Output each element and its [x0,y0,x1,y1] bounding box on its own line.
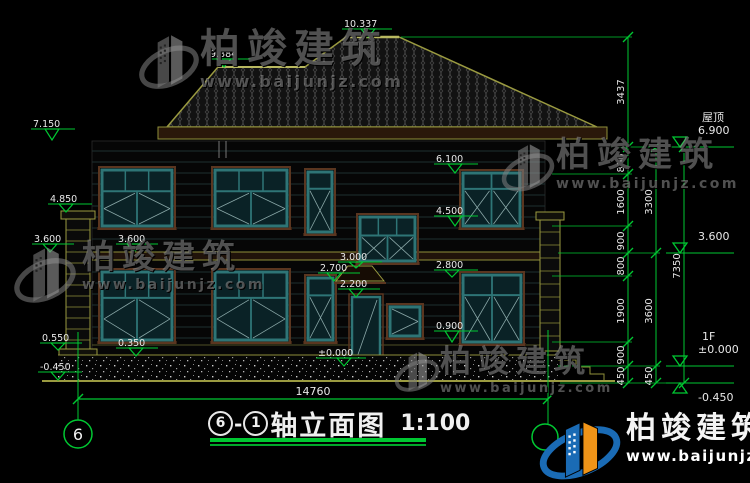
title-underline-thick [210,438,426,442]
chain-dim-value: 900 [616,345,627,364]
elevation-value: 10.337 [344,19,377,30]
window-double [210,167,292,230]
dim-chain: 343780016009008001900900450 [616,32,633,388]
title-underline-thin [210,444,426,446]
corner-pier [536,212,564,351]
overall-dim-value: 14760 [296,385,331,398]
chain-dim-value: 450 [616,366,627,385]
brand-logo: 柏竣建筑 www.baijunjz.com [536,414,750,482]
elevation-value: 3.000 [340,252,367,263]
chain-dim-value: 1600 [616,189,627,214]
level-mark: 3.600 [666,230,734,253]
elevation-value: 9.384 [210,49,237,60]
elevation-value: 2.200 [340,279,367,290]
chain-dim-value: 1900 [616,298,627,323]
title-axis-start: 6 [208,411,233,436]
level-mark: 屋顶6.900 [666,111,734,147]
elevation-value: 4.850 [50,194,77,205]
pier-cap [536,212,564,220]
dim-chain: 7350 [672,142,689,388]
brand-logo-icon [536,414,626,482]
elevation-value: 0.900 [436,321,463,332]
chain-dim-value: 3437 [616,79,627,104]
window-frame [390,307,420,336]
window-xpanes [458,272,526,346]
dim-chain: 33003600450 [644,142,661,388]
elevation-marker: 7.150 [31,119,75,140]
window-narrow [303,169,337,236]
level-value: ±0.000 [698,343,739,356]
elevation-value: 0.550 [42,333,69,344]
plinth [58,355,558,381]
level-name: 屋顶 [702,111,724,124]
level-triangle [673,356,687,366]
window-small [385,304,425,340]
chain-dim-value: 7350 [672,253,683,278]
elevation-value: 0.350 [118,338,145,349]
brand-name: 柏竣建筑 [626,414,750,444]
elevation-marker: 4.850 [48,194,92,212]
floor-band [92,252,545,260]
elevation-marker: 9.384 [208,49,252,67]
level-triangle [673,383,687,393]
elevation-value: 3.600 [118,234,145,245]
chain-dim-value: 800 [616,256,627,275]
elevation-value: 3.600 [34,234,61,245]
window-xpanes [458,170,525,230]
elevation-value: 7.150 [33,119,60,130]
level-value: 3.600 [698,230,730,243]
axis-bubble-label: 6 [73,425,83,444]
level-value: -0.450 [698,391,733,404]
eave-fascia [158,127,607,139]
title-axis-end: 1 [243,411,268,436]
elevation-value: 2.700 [320,263,347,274]
elevation-value: -0.450 [40,362,71,373]
level-triangle [673,243,687,253]
chain-dim-value: 3300 [644,189,655,214]
level-name: 1F [702,330,715,343]
title-separator: - [234,412,242,436]
window-narrow [303,275,338,344]
chain-dim-value: 3600 [644,298,655,323]
window-double [210,269,292,344]
window-double [97,167,177,230]
overall-dimension: 14760 [73,385,553,404]
chimney-body [66,219,90,349]
chain-dim-value: 900 [616,231,627,250]
chain-dim-value: 450 [644,366,655,385]
elevation-value: 2.800 [436,260,463,271]
elevation-marker: 10.337 [342,19,392,37]
brand-url: www.baijunjz.com [626,447,750,465]
level-mark: 1F±0.000 [666,330,739,366]
elevation-value: 6.100 [436,154,463,165]
level-mark: -0.450 [666,383,734,404]
right-corner-steps [558,360,604,381]
window-double [97,269,177,344]
title-scale: 1:100 [400,411,470,436]
chain-dim-value: 800 [616,153,627,172]
pier-body [540,220,560,351]
elevation-value: ±0.000 [318,348,353,359]
window-frame [308,278,333,340]
dimension-chains: 3437800160090080019009004503300360045073… [616,32,689,388]
marker-triangle [217,59,231,67]
level-value: 6.900 [698,124,730,137]
cad-elevation-screenshot: 6 14760 34378001600900800190090045033003… [0,0,750,483]
elevation-value: 4.500 [436,206,463,217]
marker-triangle [43,244,57,252]
window-frame [308,172,332,232]
marker-triangle [45,129,59,140]
